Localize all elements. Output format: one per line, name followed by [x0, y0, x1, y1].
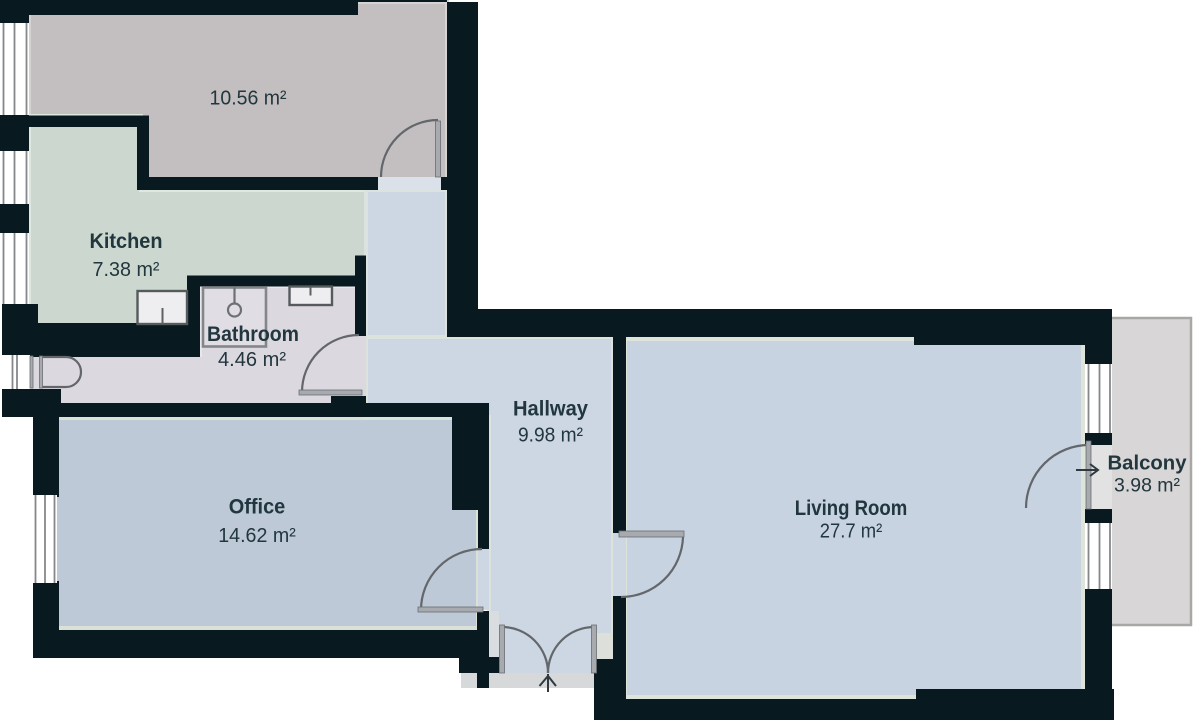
svg-text:Kitchen: Kitchen	[90, 230, 163, 253]
svg-text:10.56 m²: 10.56 m²	[210, 87, 287, 110]
svg-text:Living Room: Living Room	[795, 497, 908, 520]
svg-text:14.62 m²: 14.62 m²	[218, 524, 296, 547]
svg-text:Office: Office	[229, 496, 286, 519]
svg-text:Balcony: Balcony	[1108, 453, 1188, 475]
svg-text:7.38 m²: 7.38 m²	[93, 258, 160, 281]
svg-text:3.98 m²: 3.98 m²	[1114, 475, 1181, 497]
svg-text:Bathroom: Bathroom	[207, 323, 299, 346]
svg-text:27.7 m²: 27.7 m²	[820, 520, 883, 543]
svg-text:9.98 m²: 9.98 m²	[518, 424, 583, 447]
svg-text:Hallway: Hallway	[513, 398, 588, 421]
svg-text:4.46 m²: 4.46 m²	[218, 348, 286, 371]
